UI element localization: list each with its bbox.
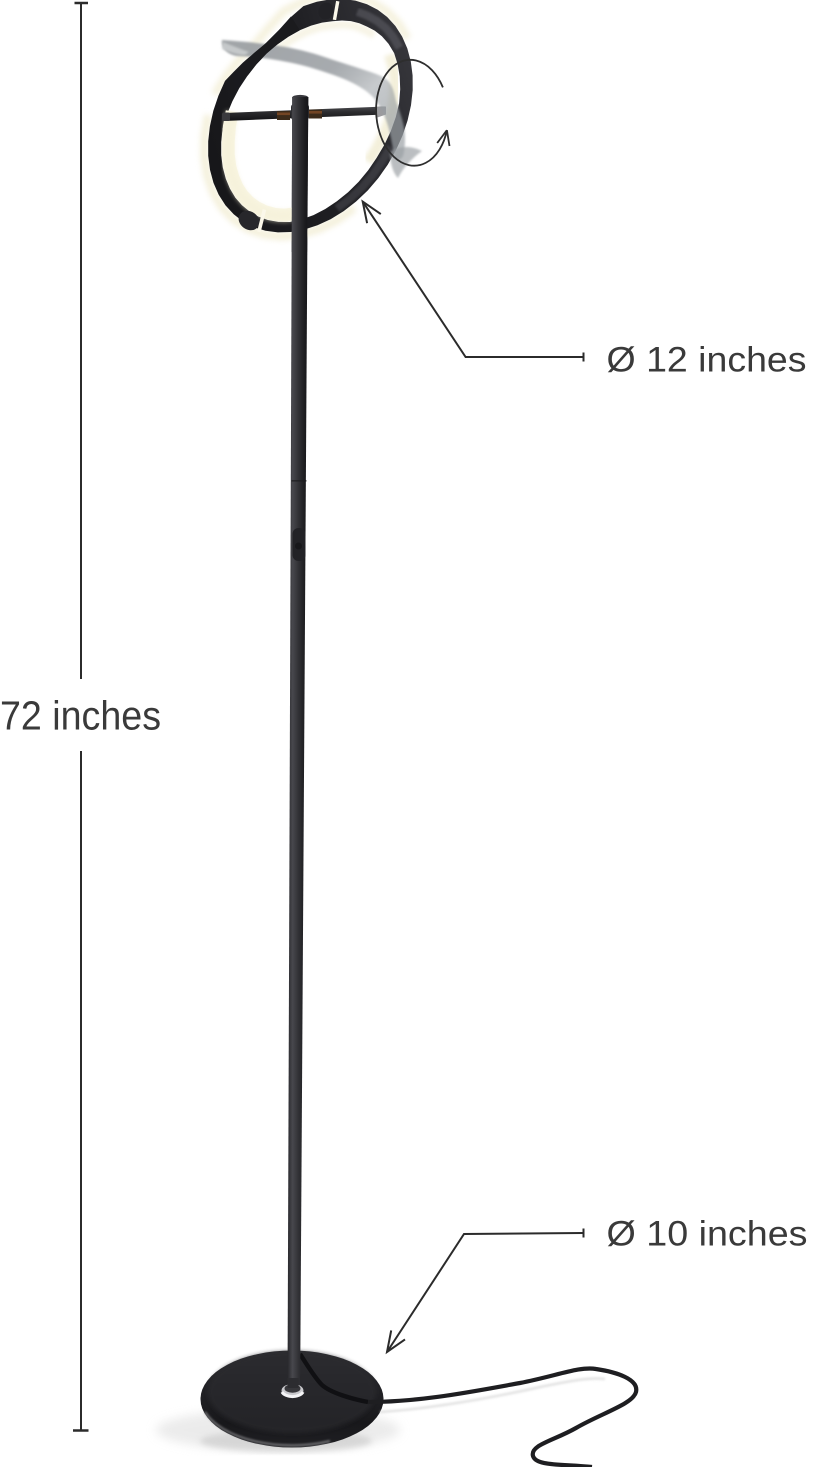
svg-text:72 inches: 72 inches bbox=[0, 693, 161, 739]
svg-text:Ø 12 inches: Ø 12 inches bbox=[607, 340, 807, 379]
svg-text:Ø 10 inches: Ø 10 inches bbox=[607, 1214, 808, 1253]
